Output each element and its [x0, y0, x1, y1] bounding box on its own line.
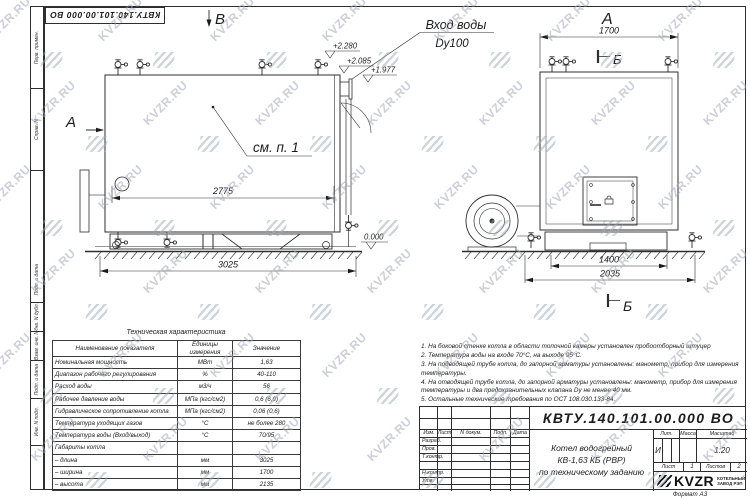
dim-1400: 1400 — [599, 255, 619, 265]
margin-label: Инв. N дубл. — [34, 303, 40, 332]
margin-cell: Справ. N — [31, 89, 43, 171]
title-block-name: Котел водогрейный КВ-1,63 КБ (РВР) по те… — [530, 429, 653, 491]
inlet-size-label: Dy100 — [435, 38, 469, 50]
format-label: Формат А3 — [645, 491, 735, 498]
tech-table-row: Температура воды (Вход/выход)°С70/95 — [53, 430, 301, 442]
tech-table-row: Гидравлическое сопротивление котлаМПа (к… — [53, 405, 301, 417]
scale-header: Масштаб — [697, 429, 747, 438]
margin-label: Подп. и дата — [34, 264, 40, 295]
tech-table-row: Расход водым3/ч56 — [53, 381, 301, 393]
title-block-doc-number: КВТУ.140.101.00.000 ВО — [530, 407, 747, 429]
margin-label: Подп. и дата — [34, 364, 40, 395]
sheet-value: 1 — [684, 462, 700, 471]
dim-3025: 3025 — [218, 260, 239, 270]
sheet-label: Лист — [654, 462, 683, 471]
margin-label: Инв. N подл. — [34, 407, 40, 436]
tech-col-units: Единицы измерения — [178, 341, 233, 357]
tech-table-row: – длинамм3025 — [53, 454, 301, 466]
tech-table-row: Рабочее давление водыМПа (кгс/см2)0,6 (6… — [53, 393, 301, 405]
tech-table-body: Номинальная мощностьМВт1,63Диапазон рабо… — [53, 357, 301, 491]
sign-nkontr: Н.контр. — [422, 469, 452, 477]
margin-cell: Перв. примен. — [31, 7, 43, 89]
sign-razrab: Разраб. — [422, 437, 452, 445]
scale-value: 1:20 — [697, 438, 747, 462]
section-marker-b-top: Б — [613, 52, 622, 67]
sheets-label: Листов — [701, 462, 730, 471]
dim-2775: 2775 — [212, 186, 234, 196]
margin-label: Справ. N — [34, 119, 40, 140]
rev-header-podp: Подп. — [491, 429, 510, 437]
boiler-drawing: В А Вход воды Dy100 см. п. 1 +2.280 +2.0… — [0, 0, 750, 335]
section-marker-b-bottom: Б — [623, 298, 632, 314]
margin-cell: Инв. N дубл. — [31, 303, 43, 332]
elevation-top: +2.280 — [333, 42, 358, 51]
note-item: 3. На подводящей трубе котла, до запорно… — [421, 361, 745, 377]
lit-value: И — [654, 438, 662, 462]
tech-table-row: Температура уходящих газов°Сне более 280 — [53, 417, 301, 429]
name-line-2: КВ-1,63 КБ (РВР) — [558, 454, 626, 466]
inlet-label: Вход воды — [426, 18, 487, 32]
view-marker-v: В — [215, 11, 225, 28]
tech-table-row: Номинальная мощностьМВт1,63 — [53, 357, 301, 369]
kvzr-logo: KVZR КОТЕЛЬНЫЙ ЗАВОД РЭП — [654, 471, 747, 491]
view-marker-a-side: А — [65, 114, 76, 131]
note-item: 5. Остальные технические требования по О… — [421, 396, 745, 404]
name-line-3: по техническому заданию — [539, 466, 644, 478]
note-item: 2. Температура воды на входе 70°С, на вы… — [421, 352, 745, 360]
tech-table-row: Габариты котла — [53, 442, 301, 454]
elevation-mid: +2.085 — [347, 57, 372, 66]
margin-cell: Подп. и дата — [31, 257, 43, 303]
tech-table-row: – ширинамм1700 — [53, 466, 301, 478]
tech-table: Наименование показателя Единицы измерени… — [52, 340, 301, 491]
drawing-sheet: KVZR.RUKVZR.RUKVZR.RUKVZR.RUKVZR.RUKVZR.… — [0, 0, 750, 500]
margin-cell: Подп. и дата — [31, 361, 43, 399]
title-block: КВТУ.140.101.00.000 ВО Изм. Лист N докум… — [419, 406, 746, 490]
rev-header-ndoc: N докум. — [452, 429, 490, 437]
kvzr-logo-subtext: КОТЕЛЬНЫЙ ЗАВОД РЭП — [717, 476, 745, 487]
note-item: 4. На отводящей трубе котла, до запорной… — [421, 379, 745, 395]
margin-strip: Перв. примен. Справ. N Подп. и дата Инв.… — [30, 6, 44, 490]
margin-cell — [31, 171, 43, 257]
rev-header-izm: Изм. — [421, 429, 437, 437]
notes-list: 1. На боковой стенке котла в области топ… — [421, 343, 745, 405]
elevation-low: +1.977 — [371, 66, 396, 75]
tech-col-name: Наименование показателя — [53, 341, 178, 357]
tech-table-row: – высотамм2135 — [53, 478, 301, 490]
margin-cell: Инв. N подл. — [31, 399, 43, 446]
tech-col-value: Значение — [233, 341, 301, 357]
sign-prov: Пров. — [422, 445, 452, 453]
sign-utv: Утв. — [422, 477, 452, 484]
margin-label: Перв. примен. — [34, 31, 40, 64]
margin-cell: Взам. инв. N — [31, 332, 43, 361]
mass-header: Масса — [680, 429, 696, 438]
rev-header-data: Дата — [511, 429, 529, 437]
dim-2035: 2035 — [599, 269, 621, 279]
top-stamp: КВТУ.140.101.00.000 ВО — [45, 7, 165, 24]
elevation-zero: 0.000 — [364, 233, 384, 242]
front-view-linework — [462, 33, 705, 307]
name-line-1: Котел водогрейный — [551, 442, 632, 454]
tech-table-row: Диапазон рабочего регулирования%40-110 — [53, 369, 301, 381]
watermark-text: KVZR.RU — [0, 330, 33, 380]
see-note-label: см. п. 1 — [253, 140, 299, 155]
dim-1700: 1700 — [599, 26, 619, 36]
lit-header: Лит. — [654, 429, 679, 438]
sheets-value: 2 — [731, 462, 747, 471]
note-item: 1. На боковой стенке котла в области топ… — [421, 343, 745, 351]
rev-header-list: Лист — [438, 429, 451, 437]
tech-table-title: Техническая характеристика — [52, 329, 300, 336]
tech-table-header-row: Наименование показателя Единицы измерени… — [53, 341, 301, 357]
sign-tkontr: Т.контр. — [422, 453, 452, 461]
kvzr-logo-icon — [657, 475, 673, 487]
margin-label: Взам. инв. N — [34, 331, 40, 360]
kvzr-logo-text: KVZR — [674, 473, 714, 489]
